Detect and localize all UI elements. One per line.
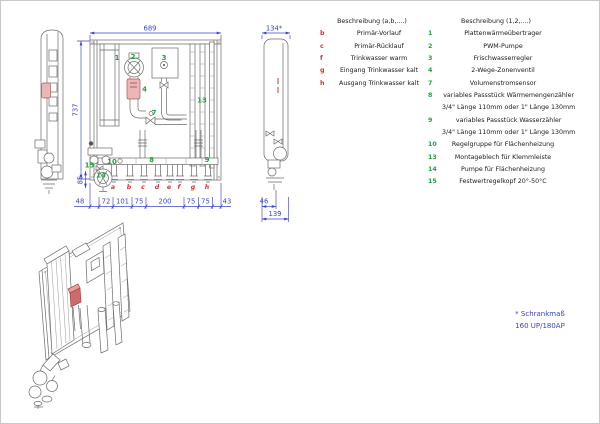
- part-label-9: 9: [205, 156, 210, 164]
- part-key: 15: [428, 176, 442, 188]
- part-key: 2: [428, 41, 442, 53]
- part-description: Frischwasserregler: [442, 53, 564, 65]
- part-description: Volumenstromsensor: [442, 78, 564, 90]
- legend-row: 2 PWM-Pumpe: [428, 41, 564, 53]
- connection-description: Primär-Rücklauf: [334, 41, 424, 53]
- part-key: 10: [428, 139, 442, 151]
- side-view-left: [35, 30, 63, 194]
- dim-chain-101: 101: [116, 198, 129, 206]
- legend-row: 15 Festwertregelkopf 20°-50°C: [428, 176, 564, 188]
- legend-row: f Trinkwasser warm: [320, 53, 424, 65]
- part-key: 13: [428, 152, 442, 164]
- legend-row: g Eingang Trinkwasser kalt: [320, 65, 424, 77]
- part-label-7: 7: [152, 109, 157, 117]
- legend-row: 10 Regelgruppe für Flächenheizung: [428, 139, 564, 151]
- part-description: Regelgruppe für Flächenheizung: [442, 139, 564, 151]
- part-key: 4: [428, 65, 442, 77]
- dim-front-height: 737: [72, 104, 80, 117]
- part-label-1: 1: [115, 54, 120, 62]
- orthographic-views: 689 134* 737 86 48 72 101 75 200 75 75 4…: [0, 0, 320, 232]
- dim-front-width: 689: [144, 25, 157, 33]
- part-description: Montageblech für Klemmleiste: [442, 152, 564, 164]
- dim-chain-75a: 75: [135, 198, 144, 206]
- cabinet-note-line2: 160 UP/180AP: [492, 320, 588, 332]
- legend-letters-header: Beschreibung (a,b,....): [320, 16, 424, 28]
- part-key: 1: [428, 28, 442, 40]
- part-key: 7: [428, 78, 442, 90]
- legend-row: c Primär-Rücklauf: [320, 41, 424, 53]
- legend-row: 9 variables Passstück Wasserzähler 3/4" …: [428, 115, 564, 140]
- legend-row: 13 Montageblech für Klemmleiste: [428, 152, 564, 164]
- part-label-2: 2: [131, 53, 136, 61]
- legend-letters-table: Beschreibung (a,b,....) b Primär-Vorlauf…: [320, 16, 424, 90]
- connection-key: h: [320, 78, 334, 90]
- connection-key: g: [320, 65, 334, 77]
- connection-description: Primär-Vorlauf: [334, 28, 424, 40]
- dim-chain-75c: 75: [201, 198, 210, 206]
- dim-side-width: 134*: [266, 25, 283, 33]
- part-label-3: 3: [162, 54, 167, 62]
- legend-row: 3 Frischwasserregler: [428, 53, 564, 65]
- cabinet-size-note: * Schrankmaß 160 UP/180AP: [492, 308, 588, 332]
- cabinet-note-line1: * Schrankmaß: [492, 308, 588, 320]
- part-description: 2-Wege-Zonenventil: [442, 65, 564, 77]
- legend-row: 8 variables Passstück Wärmemengenzähler …: [428, 90, 564, 115]
- part-description: Pumpe für Flächenheizung: [442, 164, 564, 176]
- part-label-13: 13: [197, 97, 207, 105]
- part-key: 9: [428, 115, 442, 127]
- part-key: 14: [428, 164, 442, 176]
- dim-chain-200: 200: [159, 198, 172, 206]
- connection-letter-h: h: [205, 184, 210, 191]
- part-description: Plattenwärmeübertrager: [442, 28, 564, 40]
- connection-letter-a: a: [111, 184, 115, 191]
- part-label-15: 15: [85, 162, 95, 170]
- legend-row: 1 Plattenwärmeübertrager: [428, 28, 564, 40]
- connection-key: f: [320, 53, 334, 65]
- connection-letter-g: g: [191, 184, 196, 191]
- isometric-view: [20, 213, 210, 418]
- iso-valve-cluster: [29, 365, 58, 409]
- connection-description: Eingang Trinkwasser kalt: [334, 65, 424, 77]
- dim-chain-75b: 75: [187, 198, 196, 206]
- legend-numbers-header: Beschreibung (1,2,....): [428, 16, 564, 28]
- part-label-4: 4: [142, 86, 147, 94]
- connection-letters: a b c d e f g h: [111, 184, 210, 191]
- part-key: 3: [428, 53, 442, 65]
- part-label-10: 10: [107, 158, 117, 166]
- dim-chain-48: 48: [76, 198, 85, 206]
- legend-row: 7 Volumenstromsensor: [428, 78, 564, 90]
- connection-key: b: [320, 28, 334, 40]
- legend-row: b Primär-Vorlauf: [320, 28, 424, 40]
- legend-row: 4 2-Wege-Zonenventil: [428, 65, 564, 77]
- connection-description: Trinkwasser warm: [334, 53, 424, 65]
- connection-letter-f: f: [178, 184, 182, 191]
- part-label-8: 8: [149, 156, 154, 164]
- connection-description: Ausgang Trinkwasser kalt: [334, 78, 424, 90]
- part-label-14: 14: [96, 172, 106, 180]
- legend-row: 14 Pumpe für Flächenheizung: [428, 164, 564, 176]
- freshwater-controller: [152, 48, 178, 78]
- dim-chain-43: 43: [223, 198, 232, 206]
- dim-side-depth: 46: [260, 198, 269, 206]
- connection-letter-e: e: [167, 184, 171, 191]
- technical-drawing-page: 689 134* 737 86 48 72 101 75 200 75 75 4…: [0, 0, 600, 424]
- legend-row: h Ausgang Trinkwasser kalt: [320, 78, 424, 90]
- connection-letter-c: c: [141, 184, 145, 191]
- part-description: PWM-Pumpe: [442, 41, 564, 53]
- connection-key: c: [320, 41, 334, 53]
- mounting-rails: [190, 42, 214, 168]
- connection-letter-d: d: [155, 184, 160, 191]
- part-description: Festwertregelkopf 20°-50°C: [442, 176, 564, 188]
- legend-numbers-table: Beschreibung (1,2,....) 1 Plattenwärmeüb…: [428, 16, 564, 189]
- highlighted-component-side: [42, 83, 51, 98]
- dim-chain-72: 72: [102, 198, 111, 206]
- side-view-right: [264, 39, 288, 190]
- connection-letter-b: b: [127, 184, 132, 191]
- dim-pump-height: 86: [77, 176, 85, 185]
- part-description: variables Passstück Wärmemengenzähler 3/…: [442, 90, 575, 115]
- part-description: variables Passstück Wasserzähler 3/4" Lä…: [442, 115, 575, 140]
- dim-side-length: 139: [269, 210, 282, 218]
- part-key: 8: [428, 90, 442, 102]
